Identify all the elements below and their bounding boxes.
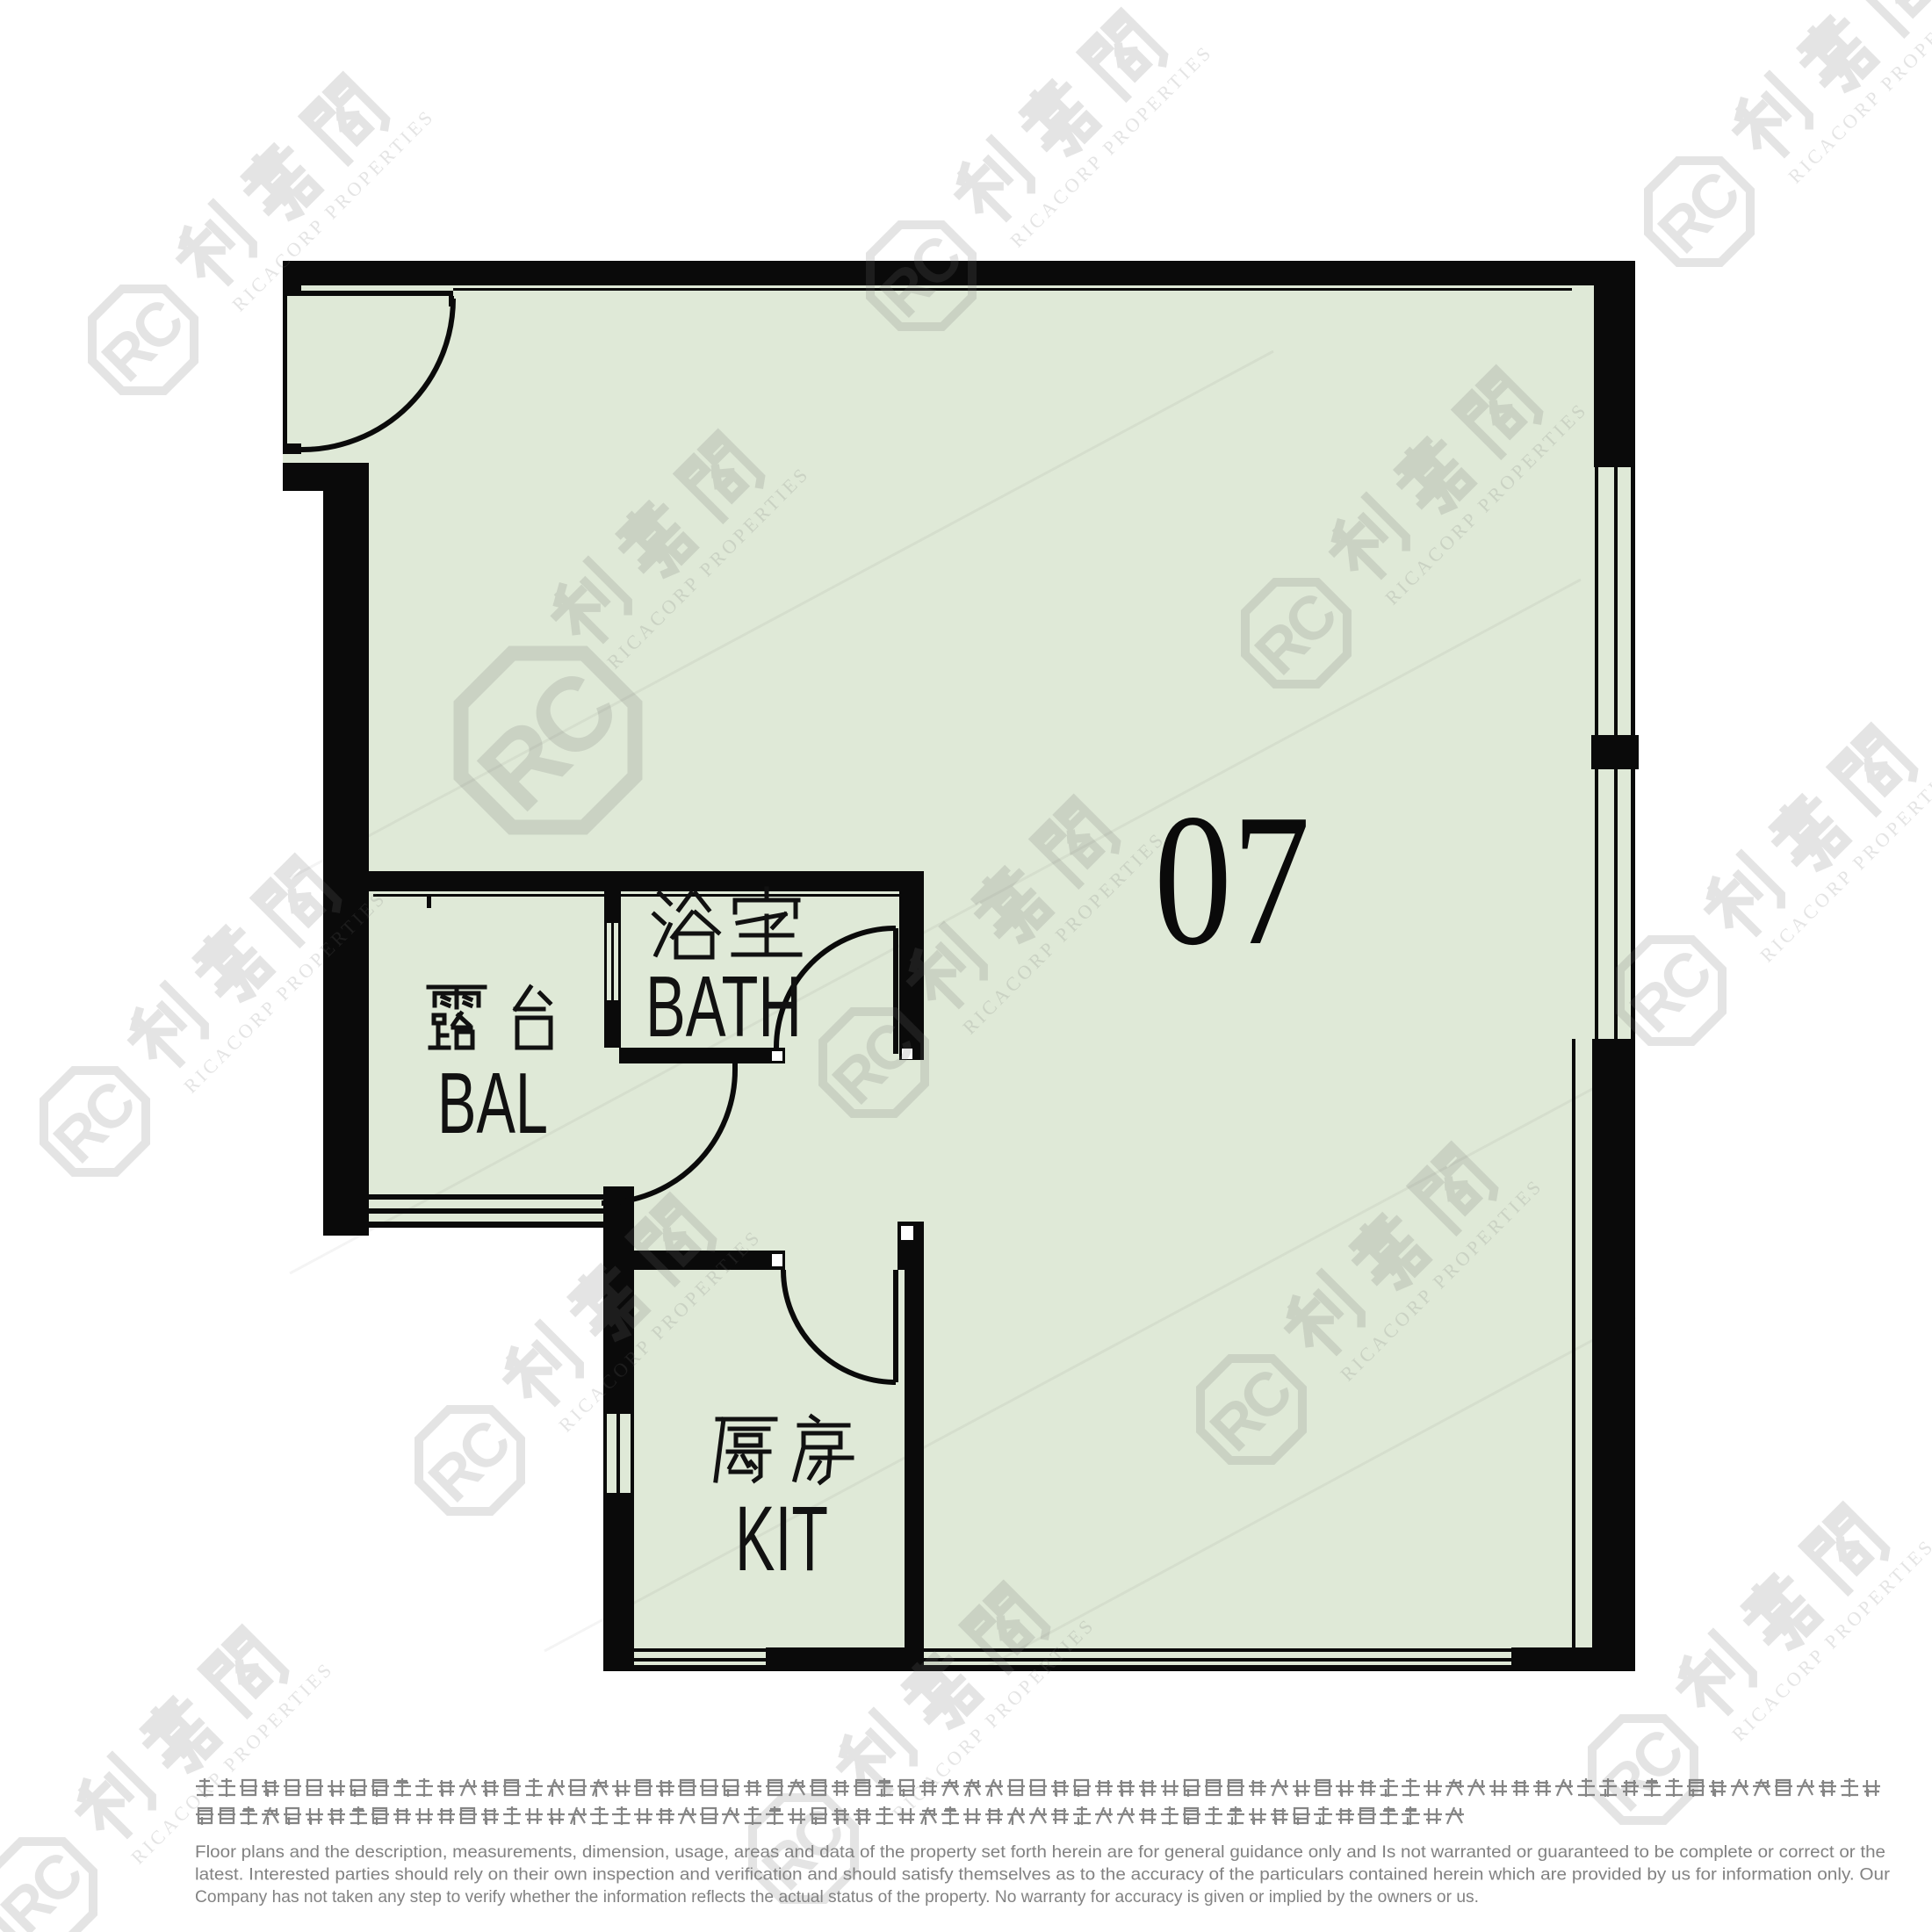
- svg-text:Company has not taken any step: Company has not taken any step to verify…: [195, 1887, 1479, 1907]
- svg-text:RICACORP PROPERTIES: RICACORP PROPERTIES: [1755, 755, 1932, 967]
- svg-text:KIT: KIT: [735, 1488, 828, 1590]
- svg-text:RICACORP PROPERTIES: RICACORP PROPERTIES: [1727, 1534, 1932, 1746]
- svg-text:BATH: BATH: [645, 958, 802, 1055]
- svg-text:RICACORP PROPERTIES: RICACORP PROPERTIES: [1784, 0, 1932, 187]
- svg-text:latest. Interested parties sho: latest. Interested parties should rely o…: [195, 1865, 1891, 1885]
- svg-text:RICACORP PROPERTIES: RICACORP PROPERTIES: [126, 1657, 338, 1869]
- svg-text:Floor plans and the descriptio: Floor plans and the description, measure…: [195, 1842, 1885, 1862]
- svg-text:07: 07: [1154, 775, 1310, 984]
- svg-text:RICACORP PROPERTIES: RICACORP PROPERTIES: [1006, 40, 1217, 252]
- svg-text:BAL: BAL: [437, 1055, 548, 1151]
